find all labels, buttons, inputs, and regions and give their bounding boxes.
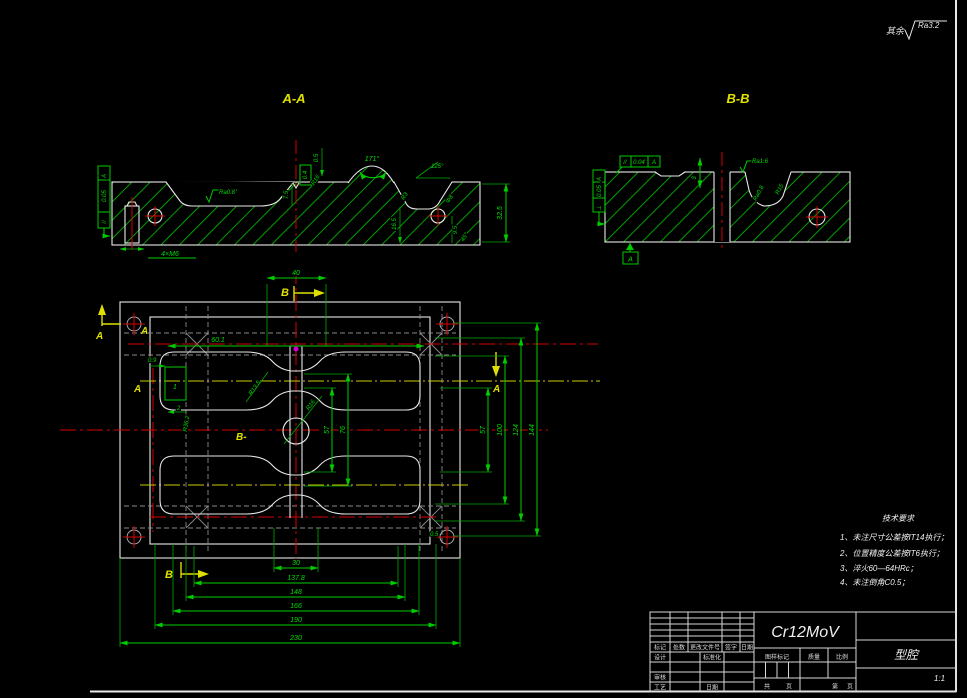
aa-ang171: 171° — [365, 155, 380, 163]
tb-mark: 标记 — [654, 644, 666, 652]
dim-mid-57: 57 — [324, 425, 331, 434]
dim-2: 2 — [176, 406, 181, 412]
bb-par-sym: // — [622, 160, 628, 166]
bb-perp-val: 0.05 — [597, 185, 603, 197]
plan-view: 1 B B B- A A A A 40 — [60, 268, 600, 647]
dim-40-label: 40 — [292, 270, 300, 277]
tb-total: 共 — [764, 683, 770, 691]
tb-change-doc: 更改文件号 — [690, 644, 720, 652]
dim-124: 124 — [513, 424, 520, 436]
aa-ra-label: Ra0.8 — [219, 190, 236, 196]
tb-drawing-mark: 图样标记 — [765, 653, 789, 661]
aa-dim165: 16.5 — [392, 218, 398, 230]
marker-a-top2: A — [140, 326, 148, 337]
dim-137-8: 137.8 — [287, 575, 305, 582]
bb-perp-sym: ⊥ — [596, 205, 603, 210]
tb-count: 处数 — [673, 644, 685, 652]
tech-item-1: 1、未注尺寸公差按IT14执行； — [840, 533, 948, 542]
tech-requirements: 技术要求 1、未注尺寸公差按IT14执行； 2、位置精度公差按IT6执行； 3、… — [839, 514, 948, 587]
dim-144: 144 — [529, 424, 536, 436]
aa-tol-datum: A — [102, 174, 108, 179]
tb-sheet2: 页 — [847, 684, 853, 691]
tb-sign: 签字 — [725, 644, 737, 652]
surface-note: 其余 Ra3.2 — [886, 21, 947, 39]
bb-parallel-frame: // 0.04 A — [616, 156, 660, 173]
dim-100: 100 — [497, 424, 504, 436]
dim-325-label: 32.5 — [497, 206, 504, 220]
section-aa-title: A-A — [281, 91, 305, 106]
tb-standardize: 标准化 — [703, 654, 721, 662]
tb-sheet: 页 — [786, 684, 792, 691]
aa-tol-value: 0.05 — [102, 190, 108, 202]
dim-57: 57 — [480, 425, 487, 434]
marker-a-right: A — [492, 384, 500, 395]
marker-b-top: B — [281, 287, 289, 299]
aa-tol-symbol: // — [102, 219, 108, 225]
aa-tolerance-frame: A 0.05 // — [98, 166, 110, 236]
tb-date2: 日期 — [706, 684, 718, 692]
tech-title: 技术要求 — [882, 514, 915, 523]
marker-a-left: A — [133, 384, 141, 395]
aa-ang125: 125° — [431, 164, 444, 170]
tb-scale: 比例 — [836, 653, 848, 661]
marker-b-mid: B- — [236, 432, 247, 443]
centerlines — [60, 268, 600, 565]
tb-design: 设计 — [654, 654, 666, 662]
marker-a-top: A — [95, 331, 103, 342]
dim-30: 30 — [292, 560, 300, 567]
revision-table: 标记 处数 更改文件号 签字 日期 设计 标准化 审核 工艺 日期 — [650, 612, 754, 692]
detail-1-box: 1 — [165, 367, 186, 400]
bb-datum-flag: A — [623, 243, 638, 264]
bb-par-val: 0.04 — [633, 160, 645, 166]
plan-left-annotations: 60.1 0.9 2 R36.2 R13.5 R16 0.5 — [148, 337, 439, 538]
dim-166: 166 — [290, 603, 302, 610]
aa-dim95: 9.5 — [453, 225, 459, 234]
bb-par-datum: A — [651, 160, 656, 166]
part-name-section: 型腔 1:1 — [856, 640, 956, 683]
section-aa-view: A-A 4×M6 — [98, 91, 510, 258]
marker-b-bottom: B — [165, 569, 173, 581]
detail-1-label: 1 — [173, 384, 177, 391]
tb-no: 第 — [832, 683, 838, 691]
cavity-profiles — [160, 346, 420, 518]
material-section: Cr12MoV 图样标记 质量 比例 共 页 第 页 — [754, 624, 856, 692]
bb-ra-top: Ra1.6 — [752, 159, 769, 165]
tech-item-2: 2、位置精度公差按IT6执行； — [839, 549, 944, 558]
scale-value-label: 1:1 — [934, 674, 945, 683]
tech-item-3: 3、淬火60—64HRc； — [840, 564, 918, 573]
thread-label: 4×M6 — [161, 251, 179, 258]
dim-230: 230 — [289, 635, 302, 642]
dim-09: 0.9 — [148, 358, 157, 364]
bb-perp-frame: A 0.05 ⊥ — [593, 170, 605, 224]
aa-dim04: 0.4 — [303, 170, 309, 179]
tech-item-4: 4、未注倒角C0.5； — [840, 578, 909, 587]
part-name-label: 型腔 — [894, 648, 920, 662]
aa-dim05: 0.5 — [314, 153, 320, 162]
surface-value-label: Ra3.2 — [918, 21, 940, 30]
drawing-canvas: 其余 Ra3.2 A-A 4×M6 — [0, 0, 967, 698]
dim-190: 190 — [290, 617, 302, 624]
surface-prefix-label: 其余 — [886, 26, 905, 36]
tb-date: 日期 — [741, 644, 753, 652]
tb-weight: 质量 — [808, 653, 820, 661]
aa-dim-325: 32.5 — [482, 184, 510, 242]
tb-check: 审核 — [654, 674, 666, 682]
tb-process: 工艺 — [654, 684, 666, 692]
bb-datum-label: A — [627, 257, 633, 264]
cad-drawing-page: 其余 Ra3.2 A-A 4×M6 — [0, 0, 967, 698]
aa-dim75: 7.5 — [284, 190, 290, 199]
material-label: Cr12MoV — [771, 624, 840, 641]
dim-mid-76: 76 — [340, 426, 347, 434]
title-block: 标记 处数 更改文件号 签字 日期 设计 标准化 审核 工艺 日期 Cr12Mo… — [650, 612, 956, 692]
gate-point — [294, 347, 299, 352]
section-bb-title: B-B — [726, 91, 749, 106]
dim-601: 60.1 — [211, 337, 225, 344]
dim-05-plan: 0.5 — [430, 532, 439, 538]
section-bb-view: B-B // 0.04 A A 0.05 — [593, 91, 850, 264]
bb-perp-datum: A — [597, 177, 603, 182]
dims-bottom: 30 137.8 148 166 190 230 — [120, 528, 460, 647]
dim-148: 148 — [290, 589, 302, 596]
